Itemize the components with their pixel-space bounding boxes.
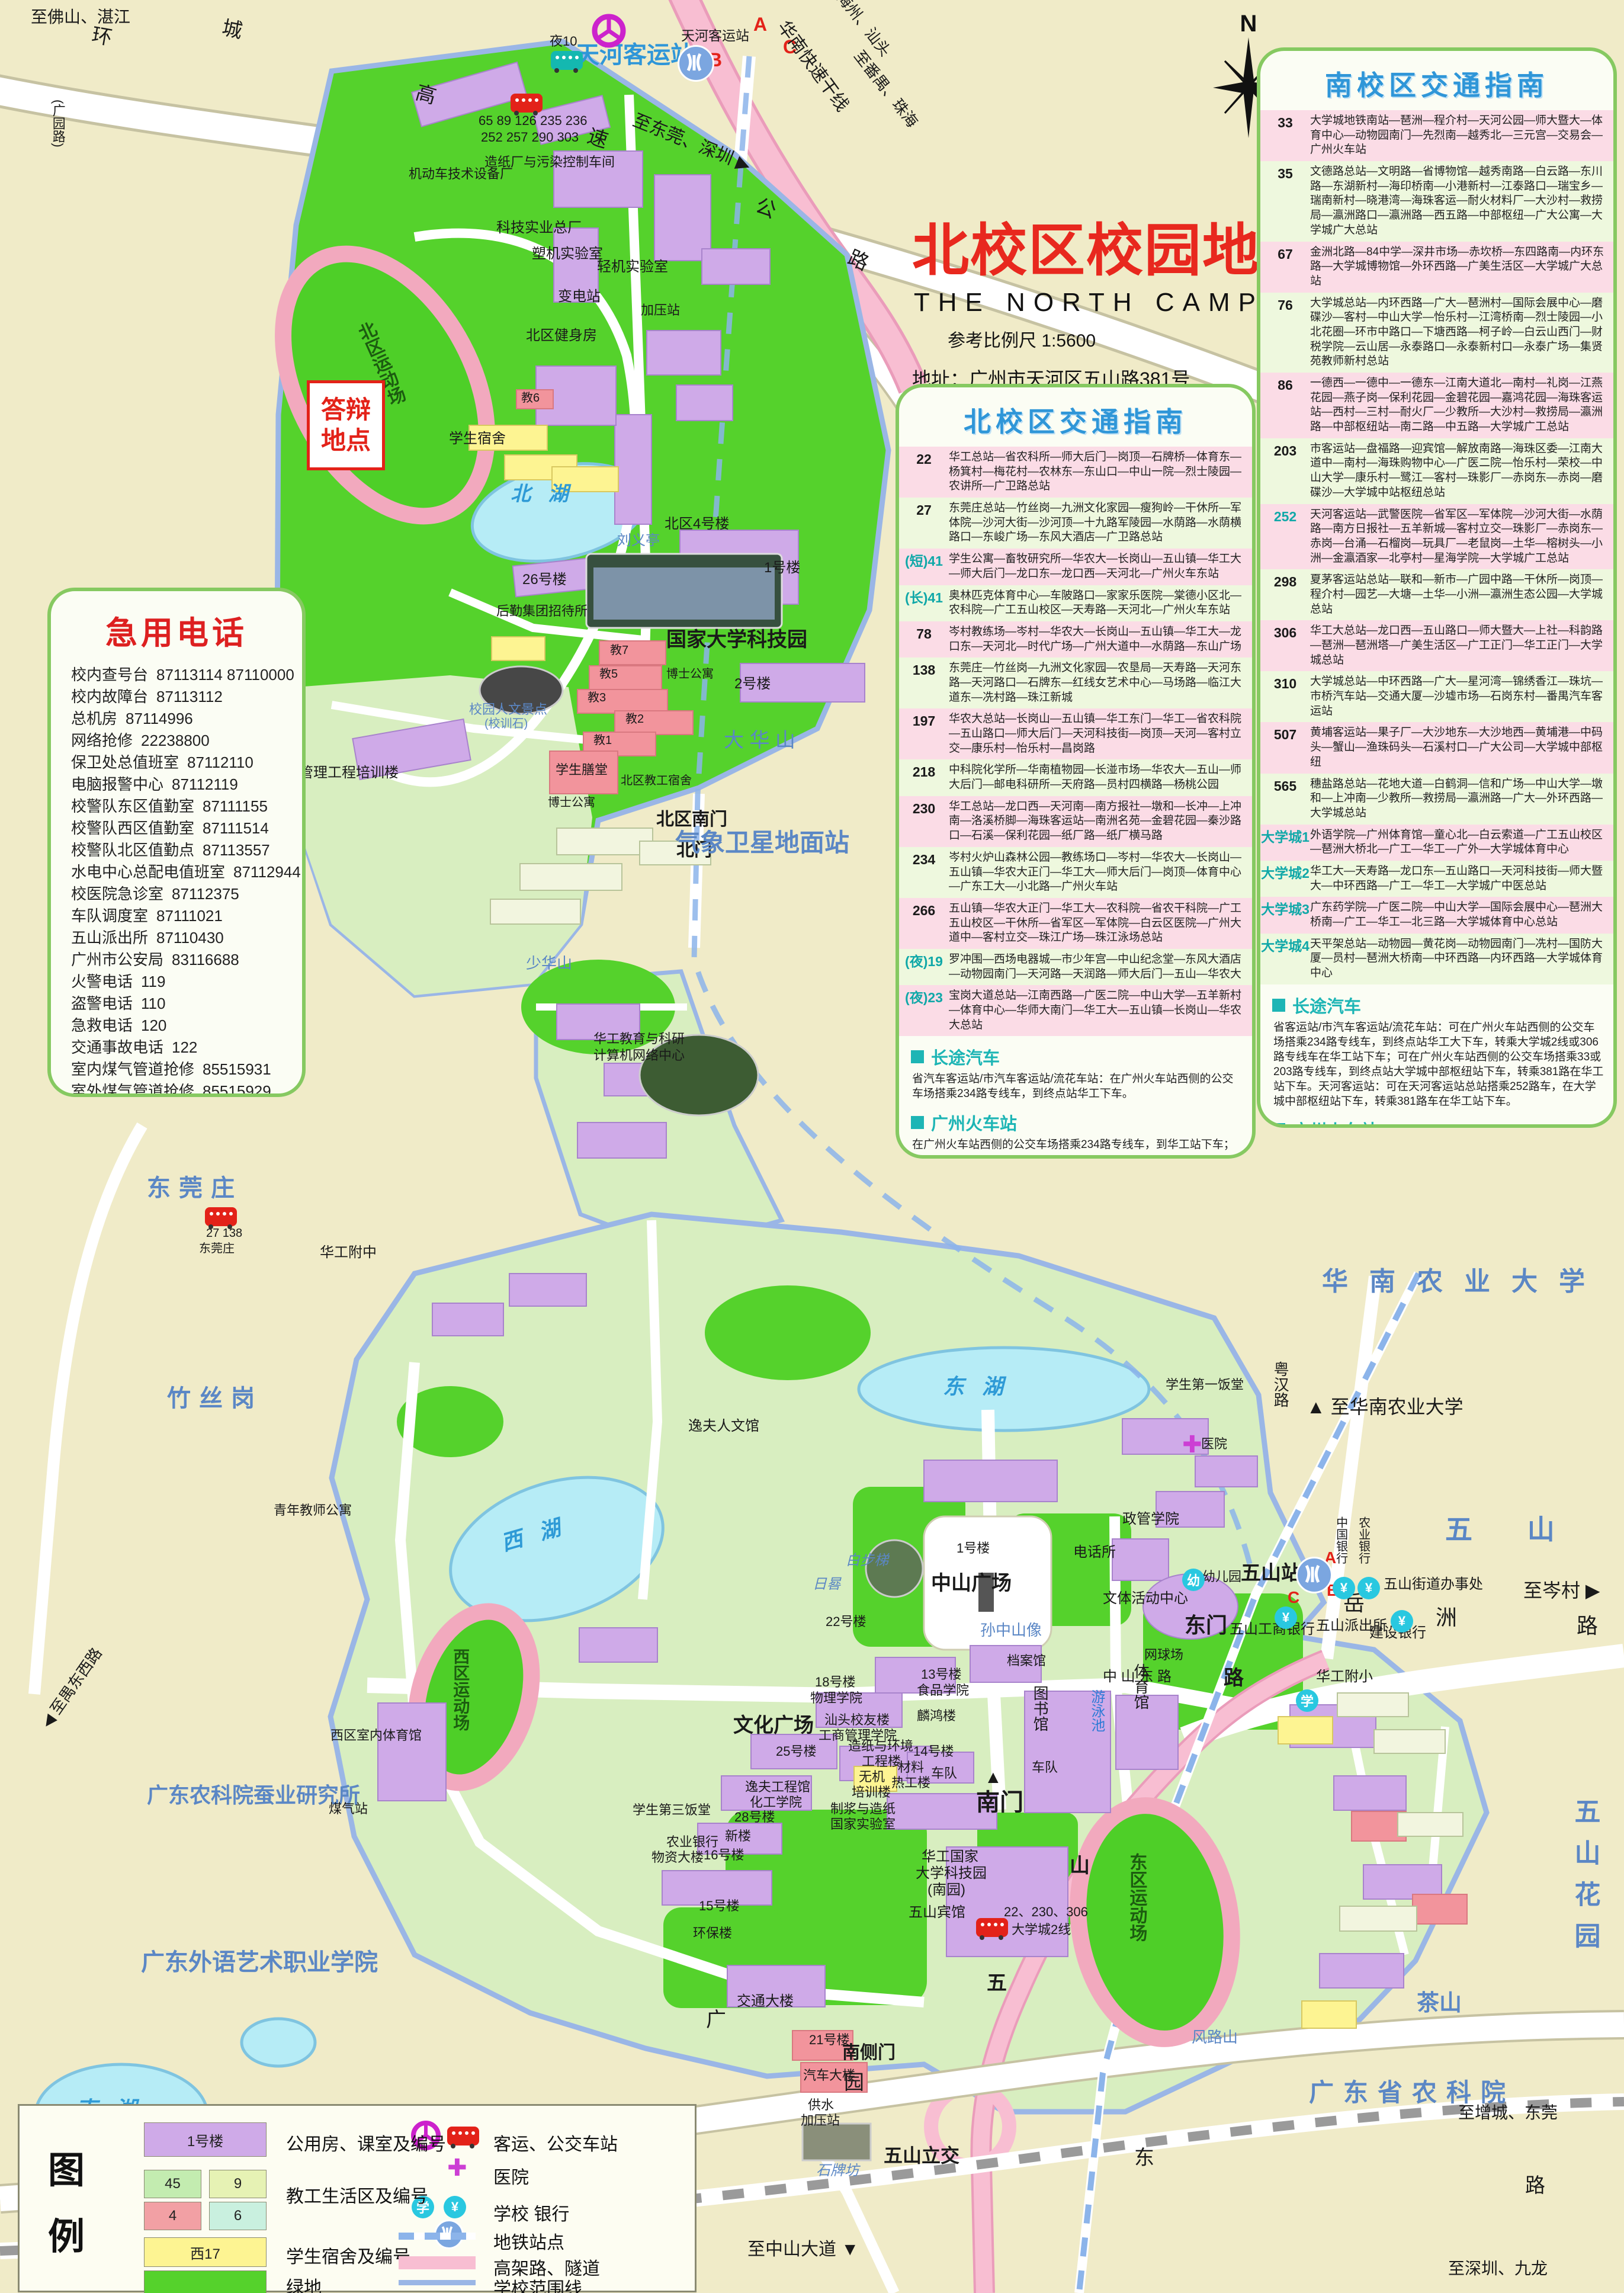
entry-label: 电脑报警中心 [71, 775, 163, 793]
route-stops: 中科院化学所—华南植物园—长湴市场—华农大—五山—师大后门—邮电科研所—天府路—… [949, 759, 1252, 796]
bus-stop-icon [511, 94, 543, 113]
legend-label: 教工生活区及编号 [286, 2182, 428, 2208]
building-label: 教5 [599, 668, 618, 681]
district-name: 竹丝岗 [167, 1386, 263, 1412]
entry-label: 保卫处总值班室 [71, 753, 179, 771]
entry-label: 室外煤气管道抢修 [71, 1082, 194, 1097]
emergency-phone-panel: 急用电话 校内查号台87113114 87110000 校内故障台8711311… [47, 588, 306, 1097]
bus-route-row: 138东莞庄—竹丝岗—九洲文化家园—农垦局—天寿路—天河东路—天河路口—石牌东—… [899, 658, 1252, 708]
route-number: 86 [1260, 373, 1310, 438]
route-stops: 华工大总站—龙口西—五山路口—师大暨大—上社—科韵路—琶洲—琶洲塔—广美生活区—… [1310, 620, 1613, 671]
bus-route-label: 大学城2线 [1012, 1923, 1071, 1937]
hotel-label: 五山宾馆 [909, 1905, 965, 1920]
route-stops: 穗盐路总站—花地大道—白鹤洞—信和广场—中山大学—墩和—上冲南—少教所—救捞局—… [1310, 774, 1613, 825]
route-stops: 黄埔客运站—果子厂—大沙地东—大沙地西—黄埔港—中码头—蟹山—渔珠码头—石溪村口… [1310, 722, 1613, 773]
emergency-entry: 室内煤气管道抢修85515931 [71, 1059, 302, 1080]
building-label: 材料 [898, 1760, 924, 1775]
building-label: 培训楼 [852, 1785, 891, 1800]
entry-label: 广州市公安局 [71, 951, 163, 968]
bus-stop-icon [205, 1207, 237, 1226]
building-label: 22号楼 [826, 1615, 866, 1629]
entry-number: 87112944 [233, 863, 301, 881]
route-number: 230 [899, 796, 949, 847]
entry-number: 87113114 87110000 [156, 666, 294, 684]
route-number: 218 [899, 759, 949, 796]
route-number: 大学城4 [1260, 934, 1310, 984]
entry-number: 85515931 [203, 1060, 271, 1078]
building-label: 14号楼 [913, 1744, 954, 1759]
school-icon: 学 [1296, 1689, 1318, 1712]
building-label: 26号楼 [522, 572, 567, 588]
facility-label: 煤气站 [329, 1802, 368, 1816]
building-label: 新楼 [725, 1829, 751, 1843]
legend-swatch-staff: 6 [209, 2202, 267, 2230]
bus-stop-icon [976, 1918, 1008, 1937]
entry-label: 五山派出所 [71, 929, 148, 947]
bus-routes-list: 22、230、306 [1004, 1905, 1088, 1919]
emergency-entry: 网络抢修22238800 [71, 730, 302, 752]
building-label: 15号楼 [699, 1899, 739, 1913]
emergency-entry: 火警电话119 [71, 971, 302, 993]
building-label: 教6 [521, 392, 540, 405]
route-stops: 金洲北路—84中学—深井市场—赤坎桥—东四路南—内环东路—大学城博物馆—外环西路… [1310, 242, 1613, 293]
emergency-entry: 车队调度室87111021 [71, 905, 302, 927]
building-label: 造纸厂与污染控制车间 [484, 155, 615, 169]
facility-label: 供水 [808, 2098, 834, 2112]
road-name: 粤汉路 [1272, 1361, 1289, 1407]
route-number: 67 [1260, 242, 1310, 293]
bank-icon: ¥ [1333, 1577, 1355, 1599]
small-pond [242, 2019, 315, 2066]
statue-label: 孙中山像 [980, 1622, 1042, 1638]
entry-label: 校警队西区值勤室 [71, 819, 194, 837]
route-stops: 一德西—一德中—一德东—江南大道北—南村—礼岗—江燕花园—燕子岗—保利花园—金碧… [1310, 373, 1613, 438]
hill-name: 风路山 [1192, 2029, 1238, 2045]
legend-swatch-staff: 45 [144, 2170, 201, 2198]
entry-number: 22238800 [141, 732, 210, 749]
science-park-label: 华工国家 [922, 1849, 978, 1865]
canteen-label: 学生第三饭堂 [633, 1803, 711, 1817]
bank-icon: ¥ [1275, 1606, 1297, 1629]
bus-route-row: 218中科院化学所—华南植物园—长湴市场—华农大—五山—师大后门—邮电科研所—天… [899, 759, 1252, 796]
building-label: 28号楼 [734, 1810, 775, 1824]
emergency-entry: 校警队东区值勤室87111155 [71, 796, 302, 817]
bus-route-row: 234岑村火炉山森林公园—教练场口—岑村—华农大—长岗山—五山镇—华农大正门—华… [899, 847, 1252, 898]
scenic-spot-label: (校训石) [484, 718, 528, 731]
building-label: 18号楼 [815, 1675, 855, 1689]
route-number: 76 [1260, 293, 1310, 373]
metro-station-label: 天河客运站 [681, 28, 749, 43]
section-text: 省客运站/市汽车客运站/流花车站：可在广州火车站西侧的公交车场搭乘234路专线车… [1273, 1020, 1605, 1109]
entry-label: 交通事故电话 [71, 1038, 163, 1056]
emergency-entry: 室外煤气管道抢修85515929 [71, 1080, 302, 1097]
building-label: 教1 [593, 735, 612, 748]
bank-label: 五山工商银行 [1230, 1622, 1315, 1637]
building-label: 无机 [859, 1770, 885, 1784]
direction-label: 至增城、东莞 [1458, 2104, 1558, 2122]
route-stops: 华农大总站—长岗山—五山镇—华工东门—华工—省农科院—五山路口—师大后门—天河科… [949, 708, 1252, 759]
bus-route-row: 197华农大总站—长岗山—五山镇—华工东门—华工—省农科院—五山路口—师大后门—… [899, 708, 1252, 759]
building-label: 物资大楼 [651, 1851, 704, 1865]
lab-label: 国家实验室 [830, 1817, 896, 1832]
route-number: 大学城3 [1260, 897, 1310, 933]
emergency-entry: 水电中心总配电值班室87112944 [71, 861, 302, 883]
legend-swatch-dorm: 西17 [144, 2237, 267, 2267]
exit-letter-c: C [1288, 1589, 1299, 1606]
entry-number: 83116688 [172, 951, 239, 968]
scenic-spot-label: 白步梯 [846, 1553, 888, 1569]
building-label: 后勤集团招待所 [496, 604, 588, 618]
route-stops: 东莞庄—竹丝岗—九洲文化家园—农垦局—天寿路—天河东路—天河路口—石牌东—红线女… [949, 658, 1252, 708]
building-label: 车队 [1032, 1760, 1058, 1775]
bus-route-row: (夜)23宝岗大道总站—江南西路—广医二院—中山大学—五羊新村—体育中心—华师大… [899, 985, 1252, 1036]
entry-label: 网络抢修 [71, 732, 133, 749]
entry-number: 87113112 [156, 688, 223, 705]
science-park-label: (南园) [927, 1882, 965, 1898]
building-label: 学生宿舍 [449, 431, 506, 447]
route-number: 266 [899, 898, 949, 949]
building-label: 食品学院 [917, 1683, 969, 1698]
building-label: 16号楼 [704, 1848, 744, 1862]
route-stops: 华工总站—龙口西—天河南—南方报社—墩和—长冲—上冲南—洛溪桥脚—海珠客运站—南… [949, 796, 1252, 847]
bus-route-row: 298夏茅客运站总站—联和—新市—广园中路—干休所—岗顶—程介村—园艺—大塘—土… [1260, 569, 1613, 620]
bus-route-row: 76大学城总站—内环西路—广大—琶洲村—国际会展中心—磨碟沙—客村—中山大学—怡… [1260, 293, 1613, 373]
building-label: 教3 [588, 692, 606, 705]
bus-routes-list: 252 257 290 303 [481, 130, 579, 145]
direction-label: 至佛山、湛江 [31, 8, 130, 26]
elevated-road-sample [399, 2256, 476, 2269]
lake-photo [640, 1035, 758, 1115]
bus-route-row: 310大学城总站—中环西路—广大—星河湾—锦绣香江—珠坑—市桥汽车站—交通大厦—… [1260, 671, 1613, 722]
university-name: 华南农业大学 [1322, 1268, 1606, 1296]
defense-location-line1: 答辩 [321, 395, 371, 426]
bus-route-row: 266五山镇—华农大正门—华工大—农科院—省农干科院—广工五山校区—干休所—省军… [899, 898, 1252, 949]
route-number: 310 [1260, 671, 1310, 722]
route-stops: 宝岗大道总站—江南西路—广医二院—中山大学—五羊新村—体育中心—华师大南门—华工… [949, 985, 1252, 1036]
road-name-char: 五 [987, 1973, 1007, 1994]
section-heading: 长途汽车 [911, 1044, 1252, 1069]
route-stops: 广东药学院—广医二院—中山大学—国际会展中心—琶洲大桥南—广工—华工—北三路—大… [1310, 897, 1613, 933]
plaza-name: 中山广场 [931, 1573, 1012, 1595]
defense-location-box: 答辩 地点 [307, 380, 385, 470]
bus-route-row: 507黄埔客运站—果子厂—大沙地东—大沙地西—黄埔港—中码头—蟹山—渔珠码头—石… [1260, 722, 1613, 773]
district-name: 五山花园 [1571, 1798, 1599, 1964]
section-text: 省汽车客运站/市汽车客运站/流花车站：在广州火车站西侧的公交车场搭乘234路专线… [912, 1072, 1244, 1101]
building-label: 汕头校友楼 [824, 1713, 890, 1727]
bus-stop-name: 东莞庄 [199, 1243, 235, 1256]
compass-north-label: N [1201, 11, 1296, 37]
gate-marker: ▲ [984, 1768, 1002, 1787]
building-label: 政管学院 [1122, 1512, 1179, 1527]
bus-route-row: 203市客运站—盘福路—迎宾馆—解放南路—海珠区委—江南大道中—南村—海珠购物中… [1260, 438, 1613, 504]
building-label: 加压站 [641, 303, 680, 318]
direction-label: 至岑村 ▶ [1523, 1580, 1600, 1601]
entry-number: 87112375 [172, 885, 239, 903]
bus-route-row: 大学城2华工大—天寿路—龙口东—五山路口—天河科技街—师大暨大—中环西路—广工—… [1260, 861, 1613, 897]
interchange-label: 五山立交 [884, 2146, 959, 2166]
bus-route-row: 22华工总站—省农科所—师大后门—岗顶—石牌桥—体育东—杨箕村—梅花村—农林东—… [899, 447, 1252, 498]
entry-number: 87114996 [126, 710, 193, 727]
school-label: 华工附小 [1316, 1669, 1373, 1685]
route-stops: 文德路总站—文明路—省博物馆—越秀南路—白云路—东川路—东湖新村—海印桥南—小港… [1310, 161, 1613, 241]
legend-label: 学校 银行 [493, 2199, 569, 2225]
lake-name: 东 湖 [943, 1375, 1009, 1399]
building-label: 博士公寓 [666, 668, 714, 681]
district-name: 五 山 [1445, 1515, 1578, 1545]
bus-route-row: (夜)19罗冲围—西场电器城—市少年宫—中山纪念堂—东风大酒店—动物园南门—天河… [899, 949, 1252, 985]
district-name: 茶山 [1417, 1991, 1462, 2016]
legend-box: 图 例 1号楼 公用房、课室及编号 45 9 4 6 教工生活区及编号 西17 … [18, 2104, 697, 2292]
building-label: 教2 [625, 713, 644, 726]
hill-name: 少华山 [526, 955, 572, 971]
section-heading: 长途汽车 [1272, 993, 1613, 1018]
stone-archway-photo [803, 2124, 871, 2160]
lab-label: 制浆与造纸 [830, 1802, 896, 1816]
bank-icon: ¥ [1357, 1577, 1380, 1599]
emergency-panel-title: 急用电话 [51, 607, 302, 653]
bus-stop-icon [447, 2127, 479, 2146]
emergency-entry: 电脑报警中心87112119 [71, 774, 302, 796]
weather-station-label: 气象卫星地面站 [675, 829, 849, 856]
route-number: (短)41 [899, 549, 949, 585]
route-stops: 学生公寓—畜牧研究所—华农大—长岗山—五山镇—华工大—师大后门—龙口东—龙口西—… [949, 549, 1252, 585]
building-label: 学生膳堂 [556, 763, 608, 777]
hospital-label: 医院 [1201, 1437, 1227, 1451]
legend-swatch-staff: 4 [144, 2202, 201, 2230]
north-guide-panel: 北校区交通指南 22华工总站—省农科所—师大后门—岗顶—石牌桥—体育东—杨箕村—… [896, 384, 1256, 1159]
emergency-entry: 交通事故电话122 [71, 1037, 302, 1059]
bus-route-row: 大学城3广东药学院—广医二院—中山大学—国际会展中心—琶洲大桥南—广工—华工—北… [1260, 897, 1613, 933]
route-number: 252 [1260, 504, 1310, 570]
bus-route-row: 252天河客运站—武警医院—省军区—军体院—沙河大街—水荫路—南方日报社—五羊新… [1260, 504, 1613, 570]
route-number: 507 [1260, 722, 1310, 773]
bus-route-row: 67金洲北路—84中学—深井市场—赤坎桥—东四路南—内环东路—大学城博物馆—外环… [1260, 242, 1613, 293]
emergency-entry: 校医院急诊室87112375 [71, 883, 302, 905]
emergency-entry: 校内查号台87113114 87110000 [71, 664, 302, 686]
entry-number: 87113557 [203, 841, 270, 859]
emergency-entry: 急救电话120 [71, 1015, 302, 1037]
bus-route-row: 35文德路总站—文明路—省博物馆—越秀南路—白云路—东川路—东湖新村—海印桥南—… [1260, 161, 1613, 241]
bus-routes-list: 65 89 126 235 236 [479, 114, 588, 128]
entry-number: 87112110 [187, 753, 253, 771]
building-label: 计算机网络中心 [593, 1048, 685, 1063]
entry-number: 119 [141, 973, 165, 990]
route-number: 234 [899, 847, 949, 898]
building-label: 麟鸿楼 [917, 1709, 956, 1723]
building-label: 造纸与环境 [848, 1739, 913, 1753]
defense-location-line2: 地点 [321, 425, 371, 457]
building-label: 化工学院 [750, 1795, 802, 1810]
bus-route-row: 86一德西—一德中—一德东—江南大道北—南村—礼岗—江燕花园—燕子岗—保利花园—… [1260, 373, 1613, 438]
entry-number: 110 [141, 995, 165, 1012]
route-number: 大学城2 [1260, 861, 1310, 897]
route-stops: 市客运站—盘福路—迎宾馆—解放南路—海珠区委—江南大道中—南村—海珠购物中心—广… [1310, 438, 1613, 504]
hospital-icon: ✚ [1182, 1431, 1202, 1458]
office-label: 五山街道办事处 [1384, 1577, 1483, 1592]
route-stops: 岑村教练场—岑村—华农大—长岗山—五山镇—华工大—龙口东—天河北—时代广场—广州… [949, 621, 1252, 658]
road-name-char: 东 [1134, 2147, 1154, 2169]
bus-route-row: (短)41学生公寓—畜牧研究所—华农大—长岗山—五山镇—华工大—师大后门—龙口东… [899, 549, 1252, 585]
section-text: 在广州火车站西侧的公交车场搭乘234路专线车，到华工站下车； [912, 1137, 1244, 1152]
bus-route-row: (长)41奥林匹克体育中心—车陂路口—家家乐医院—棠德小区北—农科院—广工五山校… [899, 585, 1252, 621]
bank-label: 农业银行 [1356, 1516, 1369, 1564]
route-number: 138 [899, 658, 949, 708]
entry-label: 室内煤气管道抢修 [71, 1060, 194, 1078]
facility-label: 加压站 [801, 2114, 840, 2128]
building-label: 青年教师公寓 [274, 1503, 352, 1518]
emergency-entry: 广州市公安局83116688 [71, 949, 302, 971]
road-name: (广园路) [51, 100, 65, 147]
hospital-icon: ✚ [447, 2154, 467, 2182]
route-number: 78 [899, 621, 949, 658]
bus-route-row: 大学城1外语学院—广州体育馆—童心北—白云索道—广工五山校区—琶洲大桥北—广工—… [1260, 825, 1613, 861]
bank-icon: ¥ [1391, 1610, 1413, 1633]
entry-number: 87111155 [203, 797, 268, 815]
lake-name: 北 湖 [511, 483, 574, 505]
plaza-name: 文化广场 [733, 1715, 814, 1737]
metro-station-icon [1296, 1557, 1333, 1593]
building-label: 北区教工宿舍 [621, 775, 692, 788]
archway-label: 石牌坊 [816, 2163, 859, 2179]
library-label: 图书馆 [1032, 1685, 1048, 1731]
route-number: 35 [1260, 161, 1310, 241]
gate-label: 南门 [976, 1790, 1023, 1816]
kindergarten-icon: 幼 [1182, 1569, 1205, 1591]
entry-label: 水电中心总配电值班室 [71, 863, 225, 881]
route-number: (夜)19 [899, 949, 949, 985]
building-label: 华工教育与科研 [593, 1032, 685, 1046]
metro-station-icon [678, 45, 714, 82]
legend-label: 学校范围线 [493, 2274, 582, 2293]
building-label: 工程楼 [862, 1755, 901, 1769]
road-name-char: 路 [1577, 1615, 1598, 1638]
emergency-entry: 五山派出所87110430 [71, 927, 302, 949]
legend-label: 客运、公交车站 [493, 2130, 618, 2156]
gate-label: 南侧门 [842, 2044, 896, 2063]
entry-label: 校内查号台 [71, 666, 148, 684]
route-stops: 天河客运站—武警医院—省军区—军体院—沙河大街—水荫路—南方日报社—五羊新城—客… [1310, 504, 1613, 570]
route-stops: 夏茅客运站总站—联和—新市—广园中路—干休所—岗顶—程介村—园艺—大塘—土华—小… [1310, 569, 1613, 620]
building-label: 幼儿园 [1202, 1570, 1241, 1584]
entry-number: 87111514 [203, 819, 269, 837]
route-number: 197 [899, 708, 949, 759]
emergency-entry: 盗警电话110 [71, 993, 302, 1015]
building-label: 文体活动中心 [1103, 1591, 1188, 1606]
boundary-line-sample [399, 2280, 476, 2285]
building-label: 13号楼 [921, 1667, 961, 1682]
entry-number: 87111021 [156, 907, 223, 925]
route-number: (长)41 [899, 585, 949, 621]
facility-label: 游泳池 [1089, 1689, 1104, 1732]
legend-swatch-staff: 9 [209, 2170, 267, 2198]
building-label: 档案馆 [1007, 1654, 1046, 1668]
entry-label: 急救电话 [71, 1016, 133, 1034]
building-label: 变电站 [558, 289, 601, 304]
entry-number: 120 [141, 1016, 166, 1034]
campus-map-page: N 北校区校园地图 THE NORTH CAMPUS 参考比例尺 1:5600 … [0, 0, 1624, 2293]
entry-label: 总机房 [71, 710, 117, 727]
entry-label: 校医院急诊室 [71, 885, 163, 903]
route-stops: 奥林匹克体育中心—车陂路口—家家乐医院—棠德小区北—农科院—广工五山校区—天寿路… [949, 585, 1252, 621]
district-name: 东莞庄 [147, 1176, 243, 1201]
route-number: 大学城1 [1260, 825, 1310, 861]
building-label: 环保楼 [693, 1926, 732, 1941]
metro-line-sample [399, 2233, 476, 2240]
canteen-label: 学生第一饭堂 [1166, 1378, 1244, 1392]
bus-route-row: 230华工总站—龙口西—天河南—南方报社—墩和—长冲—上冲南—洛溪桥脚—海珠客运… [899, 796, 1252, 847]
building-label: 车队 [931, 1766, 957, 1781]
coach-station-icon [591, 13, 627, 52]
entry-label: 校警队东区值勤室 [71, 797, 194, 815]
route-stops: 外语学院—广州体育馆—童心北—白云索道—广工五山校区—琶洲大桥北—广工—华工—广… [1310, 825, 1613, 861]
building-label: 物理学院 [810, 1691, 862, 1705]
emergency-entry: 校警队西区值勤室87111514 [71, 817, 302, 839]
entry-label: 车队调度室 [71, 907, 148, 925]
bus-route-row: 27东莞庄总站—竹丝岗—九洲文化家园—瘦狗岭—干休所—军体院—沙河大街—沙河顶—… [899, 498, 1252, 549]
building-label: 西区室内体育馆 [330, 1728, 422, 1743]
road-name-char: 环 [90, 24, 114, 49]
building-label: 2号楼 [734, 676, 771, 692]
science-park-label: 国家大学科技园 [666, 629, 807, 651]
building-label: 21号楼 [809, 2033, 849, 2047]
route-stops: 东莞庄总站—竹丝岗—九洲文化家园—瘦狗岭—干休所—军体院—沙河大街—沙河顶—十九… [949, 498, 1252, 549]
bank-label: 农业银行 [666, 1835, 718, 1849]
emergency-entry: 总机房87114996 [71, 708, 302, 730]
route-stops: 五山镇—华农大正门—华工大—农科院—省农干科院—广工五山校区—干休所—省军区—军… [949, 898, 1252, 949]
entry-label: 校内故障台 [71, 688, 148, 705]
bus-route-row: 33大学城地铁南站—琶洲—程介村—天河公园—师大暨大—体育中心—动物园南门—先烈… [1260, 110, 1613, 161]
bus-route-row: 306华工大总站—龙口西—五山路口—师大暨大—上社—科韵路—琶洲—琶洲塔—广美生… [1260, 620, 1613, 671]
legend-label: 学生宿舍及编号 [286, 2242, 410, 2268]
facility-label: 网球场 [1144, 1648, 1183, 1662]
entry-number: 87110430 [156, 929, 224, 947]
entry-number: 87112119 [172, 775, 238, 793]
institute-name: 广东农科院蚕业研究所 [147, 1784, 360, 1807]
building-label: 轻机实验室 [597, 259, 668, 275]
section-heading: 广州火车站 [911, 1110, 1252, 1135]
science-park-label: 大学科技园 [916, 1866, 987, 1881]
white-steps-photo [866, 1540, 923, 1597]
route-number: 22 [899, 447, 949, 498]
route-stops: 天平架总站—动物园—黄花岗—动物园南门—冼村—国防大厦—员村—琶洲大桥南—中环西… [1310, 934, 1613, 984]
building-label: 教7 [610, 644, 628, 658]
north-guide-title: 北校区交通指南 [899, 400, 1252, 440]
bus-stop-icon [551, 51, 583, 70]
building-label: 逸夫人文馆 [688, 1419, 759, 1434]
section-heading: 广州火车站 [1272, 1117, 1613, 1128]
entry-number: 122 [172, 1038, 197, 1056]
sundial-label: 日晷 [813, 1577, 841, 1592]
building-label: 管理工程培训楼 [299, 765, 399, 781]
route-number: 27 [899, 498, 949, 549]
direction-label: ▲ 至华南农业大学 [1307, 1397, 1463, 1418]
entry-label: 盗警电话 [71, 995, 133, 1012]
direction-label: 至中山大道 ▼ [747, 2240, 859, 2259]
road-name-char: 广 [706, 2009, 726, 2031]
entry-label: 火警电话 [71, 973, 133, 990]
legend-swatch-green [144, 2270, 267, 2293]
bus-routes-list: 27 138 [206, 1227, 242, 1240]
gate-label: 东门 [1185, 1614, 1227, 1637]
building-label: 25号楼 [776, 1744, 816, 1759]
building-label: 交通大楼 [737, 1994, 794, 2009]
south-guide-panel: 南校区交通指南 33大学城地铁南站—琶洲—程介村—天河公园—师大暨大—体育中心—… [1257, 47, 1617, 1128]
school-label: 华工附中 [320, 1245, 377, 1261]
sports-field-label: 东区运动场 [1126, 1853, 1145, 1942]
bus-route-row: 大学城4天平架总站—动物园—黄花岗—动物园南门—冼村—国防大厦—员村—琶洲大桥南… [1260, 934, 1613, 984]
legend-label: 公用房、课室及编号 [286, 2130, 446, 2156]
building-label: 逸夫工程馆 [745, 1780, 810, 1794]
